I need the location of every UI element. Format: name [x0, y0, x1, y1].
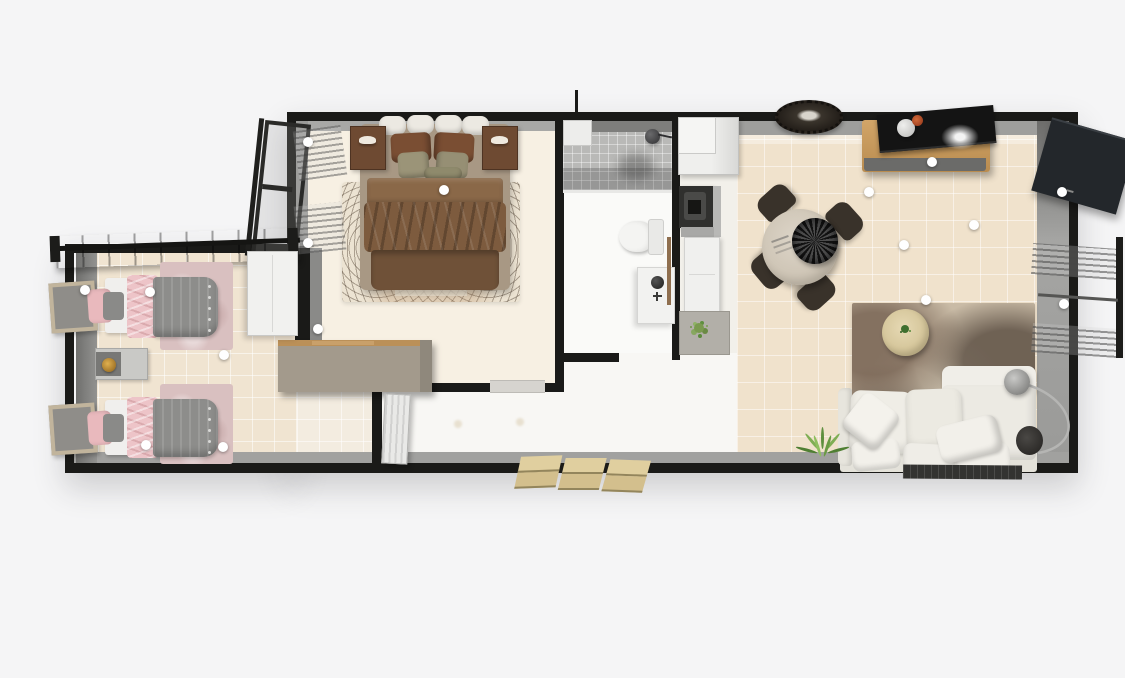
right-window-frame[interactable]: [1116, 237, 1123, 358]
right-window-curtain-top: [1031, 243, 1119, 280]
wardrobe[interactable]: [247, 251, 298, 336]
coffee-table-sprig: [901, 325, 909, 333]
sideboard-front: [864, 158, 986, 171]
shower-shadow: [618, 154, 654, 180]
dresser-side: [420, 340, 432, 392]
headboard-pillow: [407, 115, 434, 134]
entry-step: [602, 459, 651, 490]
interior-door-leaf[interactable]: [381, 393, 411, 464]
single-bed-2-buttons: [208, 407, 211, 410]
nightstand-left[interactable]: [350, 126, 386, 170]
dark-centerpiece-bowl[interactable]: [792, 218, 838, 264]
ceiling-light-dot: [454, 420, 462, 428]
fridge-top-box: [678, 117, 716, 154]
plant-foliage: [694, 323, 704, 333]
curtain-bottom: [294, 202, 347, 255]
fringed-wall-decor[interactable]: [775, 100, 843, 134]
entry-step: [558, 458, 606, 488]
white-coral-decor[interactable]: [941, 124, 979, 150]
vase-flower: [912, 115, 923, 126]
nightstand-decor: [491, 136, 508, 144]
nightstand-right[interactable]: [482, 126, 518, 170]
window-mid-bar: [262, 184, 292, 192]
shower-floor-dark-band: [563, 168, 672, 190]
bedroom-door-threshold[interactable]: [490, 380, 545, 393]
shower-head[interactable]: [645, 129, 660, 144]
toilet-tank: [648, 219, 664, 255]
gold-table-lamp[interactable]: [102, 358, 116, 372]
under-shelf: [681, 227, 714, 237]
curtain-top: [293, 125, 347, 181]
single-bed-1-cushion-gray: [103, 292, 124, 320]
arc-lamp-shade[interactable]: [1004, 369, 1030, 395]
antenna-pole: [575, 90, 578, 114]
dresser[interactable]: [278, 340, 432, 392]
dresser-wood-strip: [312, 341, 374, 345]
kitchen-counter[interactable]: [684, 237, 720, 314]
right-window-curtain-bottom: [1031, 323, 1119, 358]
water-heater[interactable]: [563, 120, 592, 146]
nightstand-decor: [359, 136, 376, 144]
counter-lip: [713, 186, 721, 237]
headboard-pillow: [435, 115, 462, 134]
door-handle: [1066, 189, 1073, 193]
wall-hall-stub: [372, 388, 382, 464]
duvet-flat: [367, 178, 503, 204]
single-bed-2-cushion-gray: [103, 414, 124, 442]
cooktop-hole: [688, 200, 701, 214]
entry-step: [515, 455, 563, 486]
duvet-rumpled: [364, 202, 506, 252]
floor-plant[interactable]: [803, 425, 843, 467]
awning-endcap: [50, 236, 61, 262]
round-coffee-table[interactable]: [882, 309, 929, 356]
floor-plan-canvas: [0, 0, 1125, 678]
single-bed-1-buttons: [208, 285, 211, 288]
wall-bath-bottom: [557, 353, 619, 362]
duvet-foot: [371, 250, 499, 290]
bathroom-sliding-door-rail: [667, 237, 671, 305]
cooktop[interactable]: [679, 186, 713, 228]
ceiling-light-dot: [516, 418, 524, 426]
counter-seam: [689, 274, 715, 275]
sink-handle: [656, 292, 658, 301]
plant-leaf: [821, 427, 824, 449]
wall-face-divider: [310, 248, 322, 345]
plant-mat[interactable]: [679, 311, 730, 355]
doormat: [903, 464, 1022, 479]
faucet: [651, 276, 664, 289]
wardrobe-divider: [272, 255, 273, 332]
